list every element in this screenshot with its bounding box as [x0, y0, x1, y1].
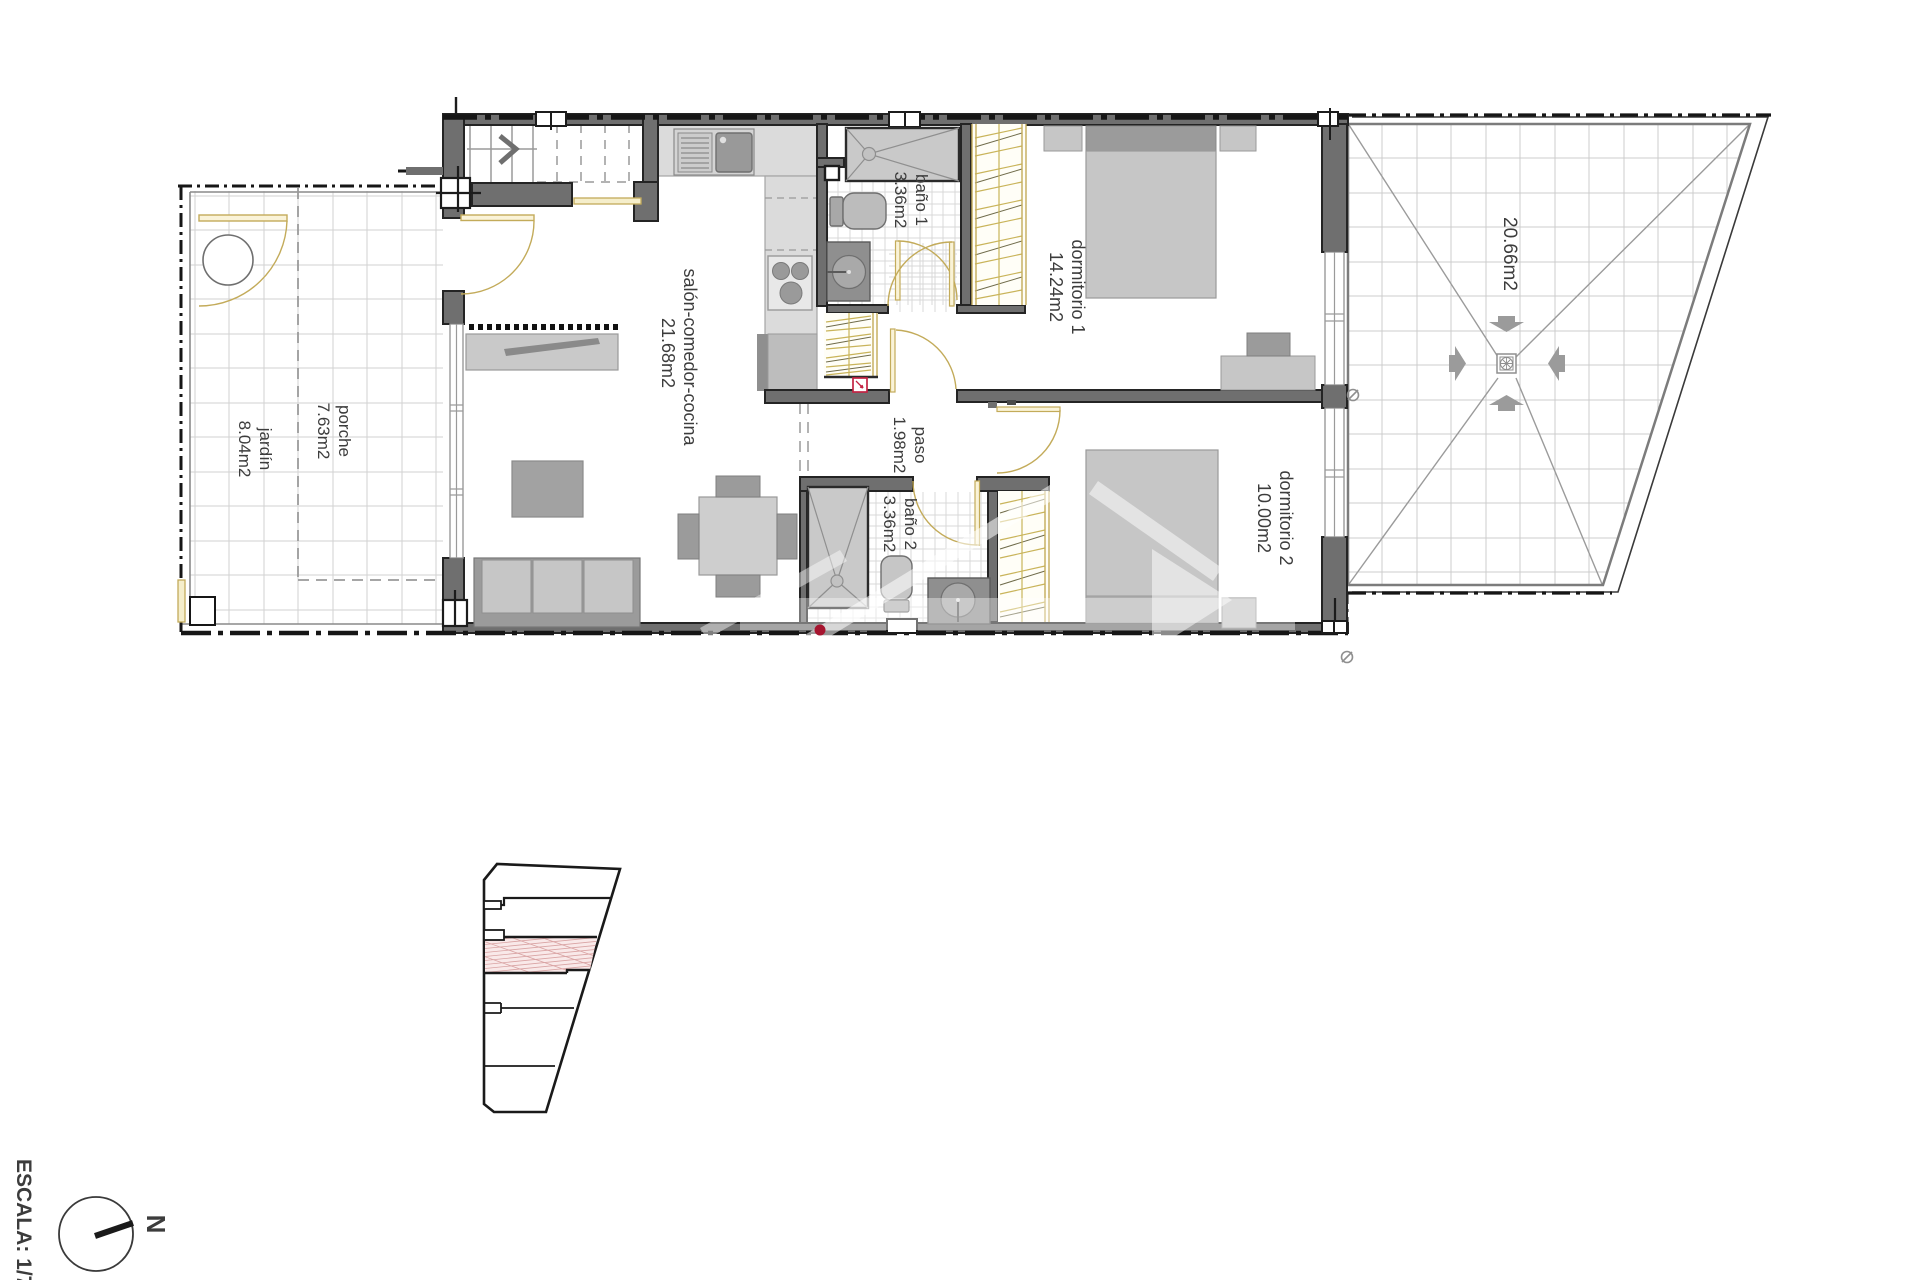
svg-text:10.00m2: 10.00m2 [1254, 483, 1274, 553]
svg-text:paso: paso [911, 427, 930, 464]
svg-text:20.66m2: 20.66m2 [1499, 217, 1520, 291]
svg-text:salón-comedor-cocina: salón-comedor-cocina [680, 268, 700, 446]
svg-text:jardín: jardín [256, 427, 275, 471]
svg-text:baño 1: baño 1 [912, 174, 931, 226]
svg-text:7.63m2: 7.63m2 [314, 403, 333, 460]
svg-text:8.04m2: 8.04m2 [235, 421, 254, 478]
svg-text:3.36m2: 3.36m2 [880, 496, 899, 553]
svg-text:21.68m2: 21.68m2 [658, 318, 678, 388]
svg-text:dormitorio 2: dormitorio 2 [1276, 470, 1296, 565]
svg-text:ESCALA: 1/75: ESCALA: 1/75 [12, 1159, 35, 1280]
svg-text:3.36m2: 3.36m2 [891, 172, 910, 229]
svg-text:dormitorio 1: dormitorio 1 [1068, 239, 1088, 334]
svg-text:1.98m2: 1.98m2 [890, 417, 909, 474]
svg-text:N: N [141, 1215, 171, 1234]
svg-text:porche: porche [335, 405, 354, 457]
svg-text:baño 2: baño 2 [901, 498, 920, 550]
svg-text:14.24m2: 14.24m2 [1046, 252, 1066, 322]
